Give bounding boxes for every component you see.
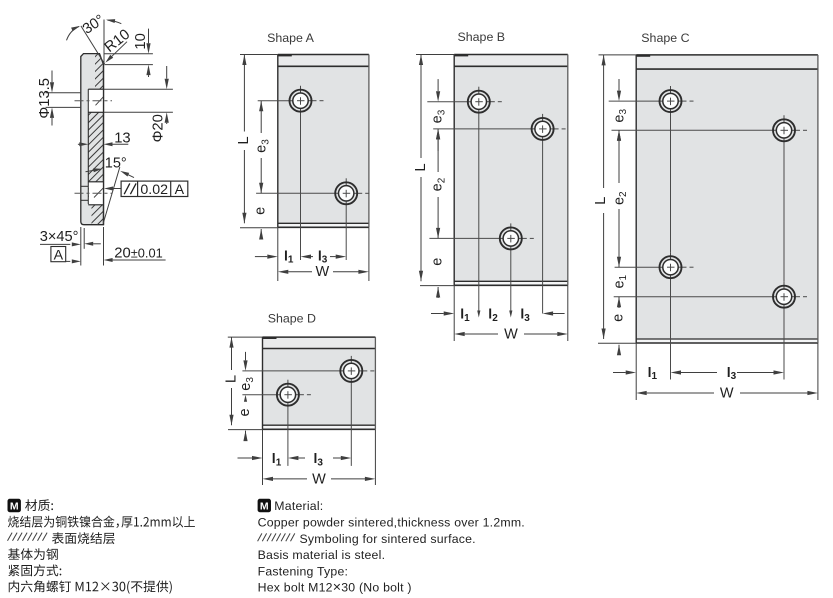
svg-text:13: 13 [114,130,130,146]
svg-text:Symboling for sintered surface: Symboling for sintered surface. [300,532,476,546]
svg-text:e: e [237,408,253,416]
svg-text:W: W [315,264,329,280]
svg-text:Fastening Type:: Fastening Type: [258,564,349,578]
svg-text:L: L [593,197,609,205]
svg-text:Shape D: Shape D [268,311,316,325]
svg-text:20±0.01: 20±0.01 [114,246,162,262]
svg-text:Shape C: Shape C [641,31,689,45]
svg-text:Shape B: Shape B [458,30,506,44]
svg-text:3×45°: 3×45° [40,229,79,245]
svg-text:e: e [430,258,446,266]
svg-text:A: A [175,182,185,198]
svg-text:W: W [504,327,518,343]
svg-text:W: W [720,385,734,401]
svg-text:Φ20: Φ20 [151,114,167,142]
svg-text:Material:: Material: [274,499,323,513]
svg-text:10: 10 [133,33,149,49]
svg-text:e: e [610,314,626,322]
svg-text:M: M [260,500,269,512]
svg-text:e: e [253,207,269,215]
svg-text:Hex bolt M12×30 (No bolt ): Hex bolt M12×30 (No bolt ) [258,579,412,595]
svg-text:W: W [312,471,326,487]
svg-text:Φ13.5: Φ13.5 [37,78,53,119]
svg-text:Basis material is steel.: Basis material is steel. [258,548,386,562]
svg-text:Shape A: Shape A [267,31,315,45]
svg-text:L: L [223,375,239,383]
svg-text:A: A [54,248,64,264]
svg-text:M: M [10,500,19,512]
svg-text:L: L [413,163,429,171]
svg-text:0.02: 0.02 [140,182,168,198]
svg-text:15°: 15° [105,155,127,171]
svg-text:L: L [236,136,252,144]
svg-text:Copper powder sintered,thickne: Copper powder sintered,thickness over 1.… [258,516,525,530]
